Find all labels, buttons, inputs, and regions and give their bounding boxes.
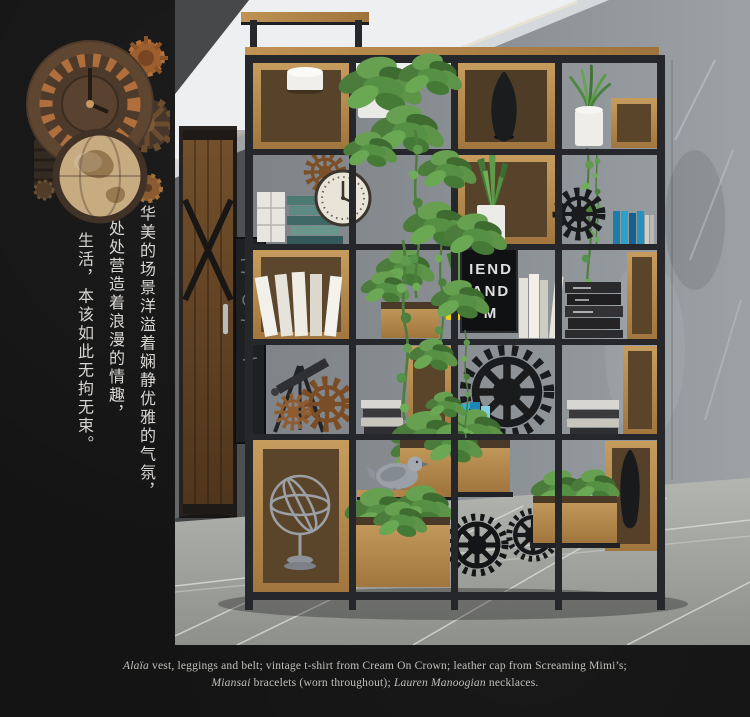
credit-text: bracelets (worn throughout); (251, 677, 394, 689)
white-bowl (287, 67, 323, 94)
brand-name: Alaïa (123, 660, 149, 672)
product-photo: IEND AND M (175, 0, 750, 645)
card-drawers (257, 192, 285, 242)
door-handle (223, 304, 228, 334)
credit-caption: Alaïa vest, leggings and belt; vintage t… (0, 658, 750, 692)
brand-name: Miansai (212, 677, 251, 689)
gray-book-stack-right (567, 400, 619, 435)
blue-books (613, 211, 654, 244)
caption-column-3: 生活，本该如此无拘无束。 (71, 205, 95, 685)
brand-name: Lauren Manoogian (394, 677, 486, 689)
steampunk-clock-artwork (20, 18, 170, 228)
credit-line-2: Miansai bracelets (worn throughout); Lau… (0, 675, 750, 692)
wall-clock (316, 171, 370, 225)
credit-text: necklaces. (486, 677, 539, 689)
caption-column-1: 华美的场景洋溢着娴静优雅的气氛， (133, 205, 157, 685)
caption-column-2: 处处营造着浪漫的情趣， (102, 205, 126, 685)
credit-line-1: Alaïa vest, leggings and belt; vintage t… (0, 658, 750, 675)
vertical-caption: 华美的场景洋溢着娴静优雅的气氛， 处处营造着浪漫的情趣， 生活，本该如此无拘无束… (68, 205, 164, 685)
svg-text:IEND: IEND (469, 261, 513, 278)
left-sidebar: 华美的场景洋溢着娴静优雅的气氛， 处处营造着浪漫的情趣， 生活，本该如此无拘无束… (0, 0, 175, 717)
credit-text: vest, leggings and belt; vintage t-shirt… (149, 660, 627, 672)
